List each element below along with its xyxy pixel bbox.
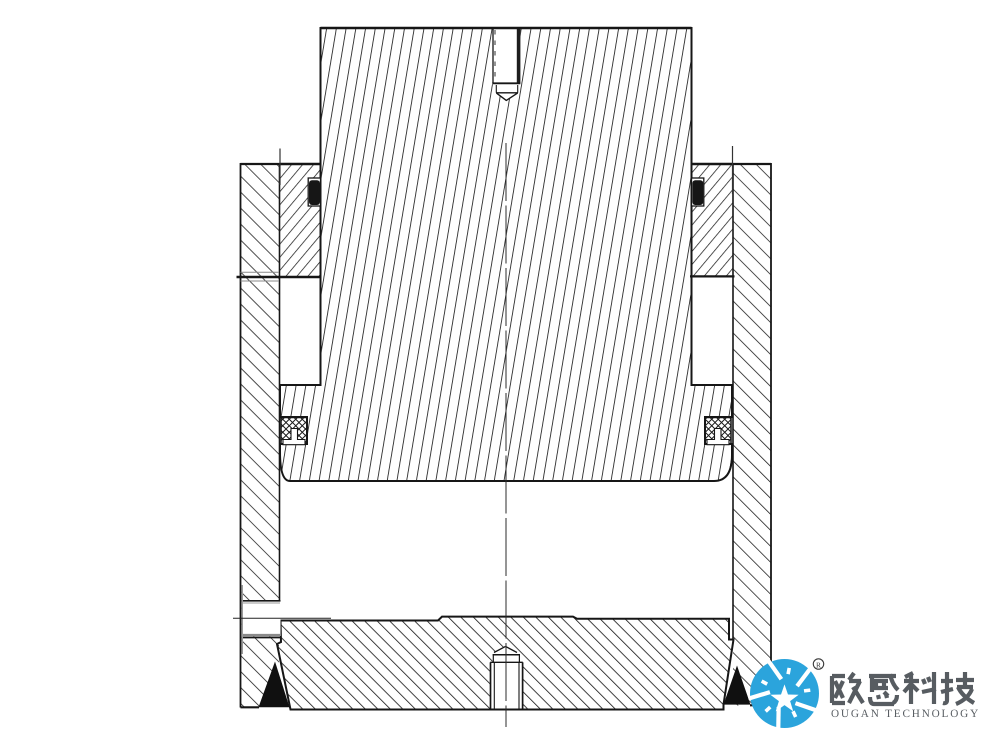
- svg-text:OUGAN TECHNOLOGY: OUGAN TECHNOLOGY: [831, 708, 980, 720]
- svg-text:R: R: [816, 661, 821, 670]
